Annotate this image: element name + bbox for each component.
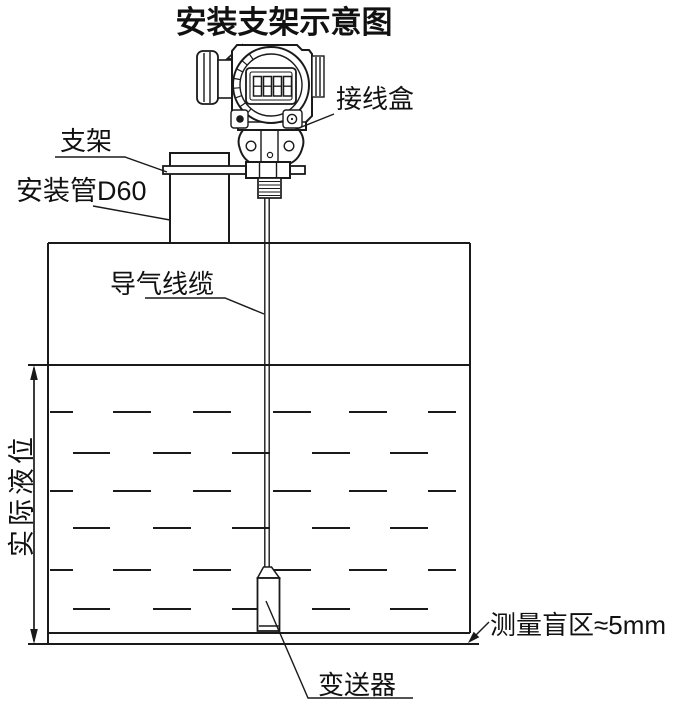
diagram-canvas: 安装支架示意图	[0, 0, 700, 708]
arrow-up-icon	[30, 365, 38, 380]
air-guide-cable	[265, 198, 269, 567]
neck-bolt-icon	[284, 141, 294, 151]
probe-icon	[258, 567, 280, 631]
label-junction-box: 接线盒	[336, 84, 414, 114]
right-screw-dot	[291, 118, 293, 120]
liquid-hatching	[50, 412, 456, 609]
label-air-cable: 导气线缆	[110, 269, 214, 299]
left-screw-icon	[236, 115, 244, 123]
label-transmitter: 变送器	[318, 670, 396, 700]
neck-bolt-icon	[246, 141, 256, 151]
transmitter-head-icon	[197, 45, 324, 198]
label-actual-level: 实际液位	[7, 433, 37, 557]
label-blind-zone: 测量盲区≈5mm	[490, 610, 666, 640]
fin-block-icon	[312, 56, 324, 97]
probe-taper	[258, 567, 280, 578]
tank	[28, 243, 479, 644]
leader-mounting-pipe	[93, 206, 170, 220]
diagram-title: 安装支架示意图	[176, 5, 393, 40]
arrow-down-icon	[30, 629, 38, 644]
installation-diagram: 安装支架示意图	[0, 0, 700, 708]
gland-neck	[218, 60, 232, 98]
label-mounting-pipe: 安装管D60	[16, 176, 147, 206]
neck-center-dot	[267, 152, 272, 157]
cable-gland-icon	[197, 51, 218, 104]
hex-nut-icon	[246, 162, 290, 178]
leader-air-cable	[145, 298, 264, 314]
leader-bracket	[55, 157, 167, 172]
bezel-tick	[233, 88, 240, 89]
label-bracket: 支架	[60, 126, 112, 156]
